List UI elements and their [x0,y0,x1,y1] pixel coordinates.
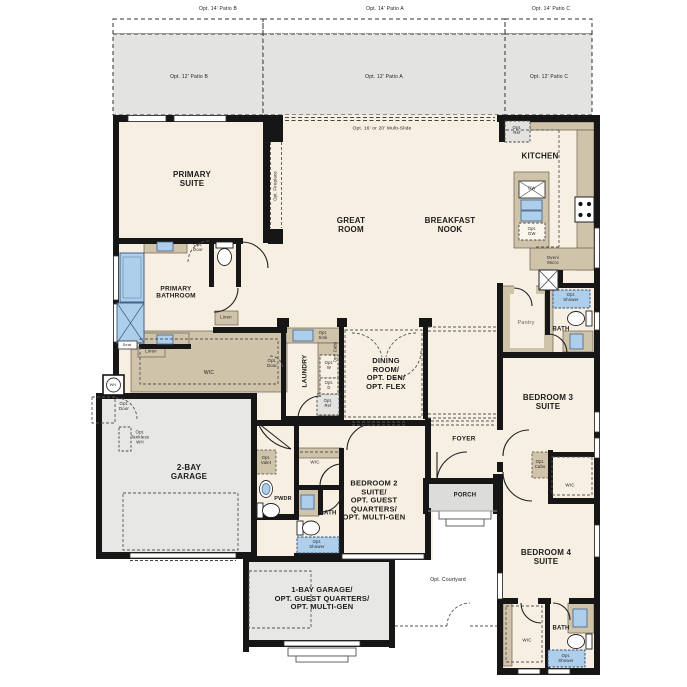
bath2-toilet [297,521,320,535]
bath4-opt-shower [548,650,585,667]
opt-washer-dryer [320,355,338,394]
opt-washer [320,355,338,378]
pwdr-pedestal-sink [260,481,273,498]
opt-dryer [320,378,338,394]
garage-1bay-floor [246,558,393,646]
multi-slide-opening [283,115,497,122]
pantry-interior [510,294,544,348]
floor-plan-drawing [0,0,687,687]
garage-2bay-door-opening [130,553,236,558]
range-cooktop [575,197,594,222]
bath3-sink [570,334,583,349]
bath3-opt-shower [553,290,590,308]
opt-refrigerator-kitchen [505,121,530,142]
patio-areas [113,19,592,115]
bed4-wic-band [503,603,512,666]
garage-1bay-door-panels [288,648,356,662]
shower-seat [118,341,137,349]
opt-refrigerator-laundry [317,394,339,415]
oven-micro-tower [539,270,558,290]
primary-tub [120,253,144,302]
bath4-toilet [568,634,593,649]
dishwasher [519,181,545,198]
pwdr-toilet [257,503,280,518]
bath2-sink [301,495,314,509]
opt-cabs-bed3-box [532,452,549,478]
garage-1bay-door-opening [284,641,360,646]
primary-sink-1 [157,242,173,251]
opt-14-patio-c-outline [505,19,592,34]
opt-12-patio-c [505,34,592,115]
pantry-door-opening [514,283,536,295]
bath3-toilet [568,311,593,326]
primary-sink-2 [157,335,173,344]
porch-floor [428,483,498,512]
primary-toilet [216,242,233,266]
floor-plan-page: Opt. 14' Patio BOpt. 14' Patio AOpt. 14'… [0,0,687,687]
kitchen-counter-top [530,122,594,130]
kitchen-counter-bottom [530,248,594,270]
opt-12-patio-a [263,34,505,115]
opt-12-patio-b [113,34,263,115]
bath2-opt-shower [297,537,339,553]
courtyard-gate-arc [447,603,470,626]
porch-steps [439,511,491,526]
laundry-opt-sink [293,330,313,341]
garage-2bay-floor [97,395,255,555]
opt-14-patio-a-outline [263,19,505,34]
bed2-wic-band [298,448,342,458]
bath4-sink [573,609,587,627]
opt-dishwasher [519,223,545,240]
water-heater [103,375,124,395]
opt-valet-box [256,450,276,474]
linen-cabinet-1 [215,311,238,325]
opt-14-patio-b-outline [113,19,263,34]
